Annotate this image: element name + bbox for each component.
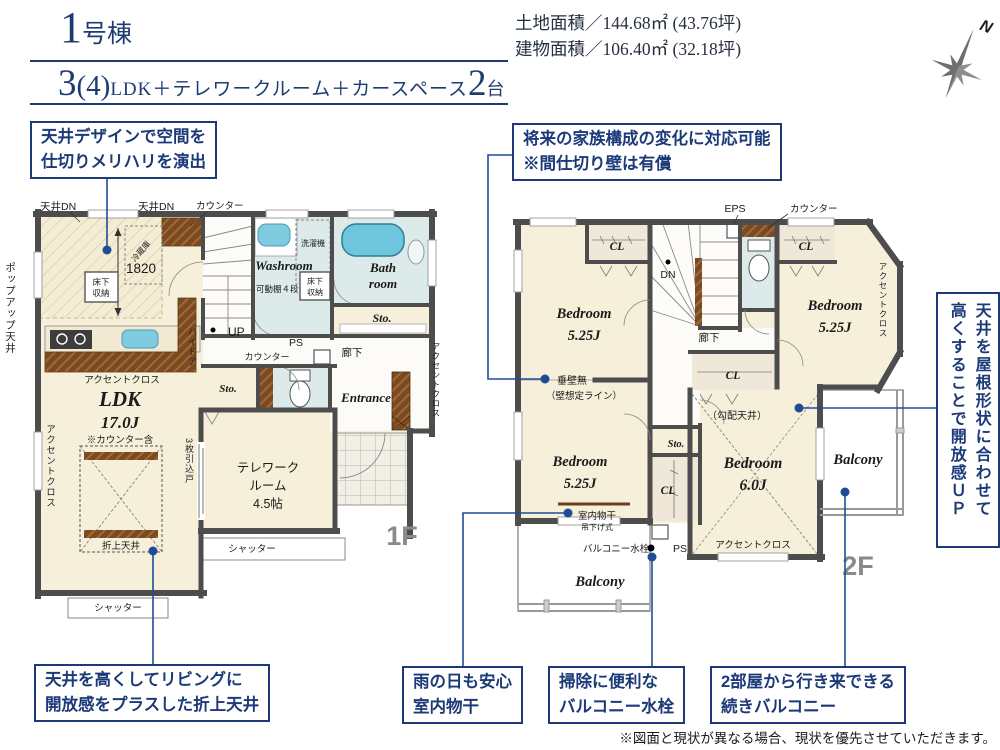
accent-kitchen-label: アクセントクロス [84,375,160,386]
underfloor-w2: 収納 [307,287,323,297]
bed2-size: 5.25J [564,476,597,492]
balcony-faucet-label: バルコニー水栓 [583,543,650,555]
ps-box-2f [652,525,668,539]
disclaimer: ※図面と現状が異なる場合、現状を優先させていただきます。 [500,727,996,747]
bed4-size: 6.0J [739,477,767,494]
cl-bed3-label: CL [799,241,814,253]
floor1-label: 1F [386,521,418,551]
entrance-label: Entrance [340,390,391,405]
stair-rail [695,258,702,326]
sliding-door-gap [197,442,205,520]
callout-coffered-ceiling: 天井を高くしてリビングに 開放感をプラスした折上天井 [34,664,270,722]
kitchen-top-counter [162,218,203,246]
ps-2f-label: PS [673,543,687,555]
up-dot [211,328,216,333]
ps-label-1f: PS [289,337,303,349]
counter-2f [742,224,777,237]
counter-mid-label: カウンター [244,352,289,362]
bed1-label: Bedroom [556,306,612,322]
toilet-tank-2f [748,240,770,251]
accent-bed3-label: アクセントクロス [877,262,889,338]
underfloor-k2: 収納 [92,288,109,298]
bed3-size: 5.25J [819,320,852,336]
dn-dot [666,260,671,265]
popup-ceiling-label: ポップアップ天井 [3,262,18,354]
cl-bed4-label: CL [726,370,741,382]
ceiling-dn-left-label: 天井DN [40,200,76,213]
telework-label-3: 4.5帖 [253,496,283,511]
bed3-label: Bedroom [807,298,863,314]
entrance-accent-wall [392,372,410,430]
accent-ldk-label: アクセントクロス [42,424,56,508]
compass-n-label: N [977,17,994,37]
toilet-counter-1f [258,368,273,410]
oriage-label: 折上天井 [102,540,140,552]
callout-roof-shape: 天井を屋根形状に合わせて 高くすることで開放感ＵＰ [936,292,1000,548]
accent-bed4-label: アクセントクロス [715,540,791,551]
washroom-sink [258,224,290,246]
entrance-porch [335,433,410,505]
shelf-label: 可動棚４段 [256,284,299,294]
bed4-label: Bedroom [723,455,783,472]
ps-box-1f [314,350,330,364]
bathtub [342,224,404,256]
balcony-bottom-label: Balcony [574,574,625,590]
hanging-type-label: 吊下げ式 [581,522,613,532]
counter-top-label: カウンター [196,201,244,212]
hallway-label-1f: 廊下 [342,346,363,359]
telework-label-1: テレワーク [237,461,300,475]
sto-hall-label: Sto. [219,383,236,395]
indoor-drying-label: 室内物干 [578,510,616,522]
callout-future-family: 将来の家族構成の変化に対応可能 ※間仕切り壁は有償 [512,123,782,181]
toilet-tank-1f [290,370,310,381]
ldk-label: LDK [98,387,143,411]
callout-balcony-faucet: 掃除に便利な バルコニー水栓 [548,666,685,724]
high-door-label: ハイドア [186,327,199,367]
counter-2f-label: カウンター [790,204,838,215]
kitchen-sink [122,330,158,348]
sliding-door-label: 3枚引込戸 [183,438,196,484]
underfloor-w1: 床下 [307,276,323,286]
bath-label-1: Bath [369,260,396,275]
up-label: UP [228,325,245,339]
closet-center [652,457,700,521]
bath-label-2: room [369,276,397,291]
shutter-telework-label: シャッター [228,544,276,555]
washer-label: 洗濯機 [301,238,325,248]
dn-label: DN [660,269,675,281]
ldk-size: 17.0J [101,413,140,432]
no-hanging-wall-label: 垂壁無 [557,374,587,387]
telework-label-2: ルーム [249,479,286,493]
floor2-label: 2F [842,551,874,581]
bath-stool [408,240,424,264]
floor1-plan: 天井DN 天井DN カウンター 冷蔵庫 1820 床下 収納 アクセントクロス … [34,200,436,618]
shutter-ldk-label: シャッター [94,603,142,614]
underfloor-k1: 床下 [92,277,110,287]
cl-center-label: CL [661,485,676,497]
wall-line-note: （壁想定ライン） [546,390,622,402]
ceiling-dn-right-label: 天井DN [138,200,174,213]
storage-shelf-1f [340,324,426,333]
sto-bath-label: Sto. [372,311,391,325]
compass-rose: N [921,5,1000,108]
sloped-ceiling-label: （勾配天井） [707,409,767,422]
sto-2f-label: Sto. [668,439,685,450]
eps-label: EPS [724,203,745,215]
accent-entrance-label: アクセントクロス [430,342,442,418]
callout-ceiling-design: 天井デザインで空間を 仕切りメリハリを演出 [30,121,217,179]
balcony-bottom [518,523,650,611]
toilet-bowl-2f [749,255,769,281]
cl-bed1-label: CL [610,241,625,253]
toilet-bowl-1f [290,381,310,407]
ldk-note: ※カウンター含 [87,434,154,446]
balcony-right-label: Balcony [832,452,883,468]
washroom-label: Washroom [255,258,313,273]
callout-indoor-drying: 雨の日も安心 室内物干 [402,666,523,724]
stove [50,330,92,349]
callout-connected-balcony: 2部屋から行き来できる 続きバルコニー [710,666,906,724]
dim-1820-label: 1820 [126,261,156,276]
bed1-size: 5.25J [568,328,601,344]
bed2-label: Bedroom [552,454,608,470]
hallway-2f-label: 廊下 [699,331,720,344]
floorplan-canvas: 天井DN 天井DN カウンター 冷蔵庫 1820 床下 収納 アクセントクロス … [0,0,1000,750]
